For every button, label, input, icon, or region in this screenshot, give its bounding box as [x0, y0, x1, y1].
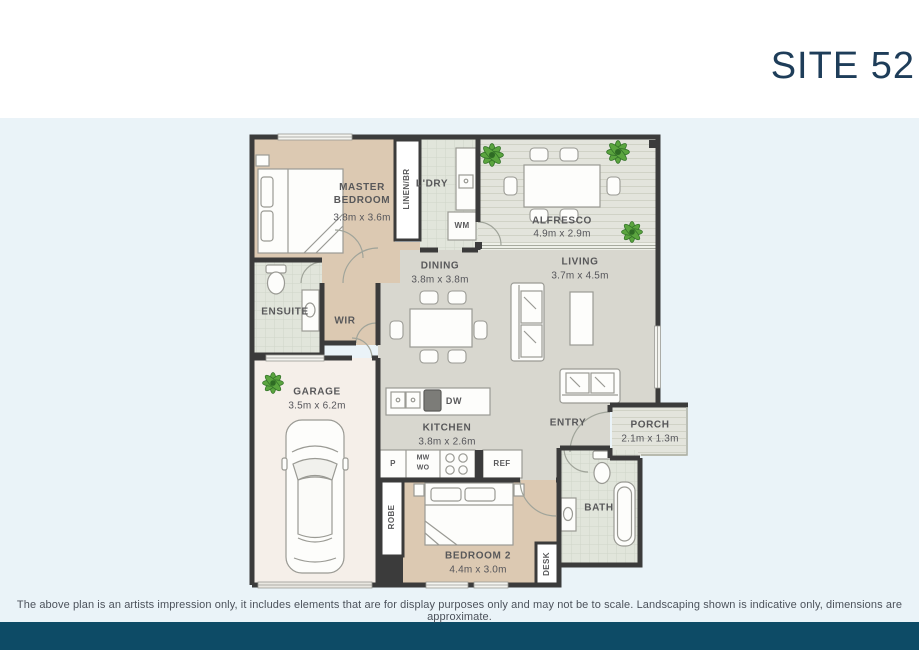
room-label-linen: LINEN/BR [402, 169, 412, 210]
room-label-kitchen: KITCHEN [423, 422, 472, 435]
wall-stub [475, 450, 483, 478]
room-dims-bedroom2: 4.4m x 3.0m [449, 564, 506, 577]
room-label-robe: ROBE [387, 505, 397, 530]
room-label-entry: ENTRY [550, 417, 587, 430]
fixture-label-washing-machine: WM [454, 221, 469, 231]
room-label-bath: BATH [584, 502, 613, 515]
footer-accent-bar [0, 622, 919, 650]
fixture-label-wall-oven: WO [417, 463, 429, 472]
room-label-dining: DINING [421, 260, 460, 273]
sofa-icon [511, 283, 544, 361]
sofa2-icon [560, 369, 620, 403]
coffee-table-icon [570, 292, 593, 345]
room-dims-master-bedroom: 3.8m x 3.6m [333, 212, 390, 225]
fixture-label-pantry: P [390, 459, 396, 469]
room-dims-living: 3.7m x 4.5m [551, 270, 608, 283]
floorplan-svg [248, 131, 690, 591]
car-icon [282, 420, 348, 573]
floor-plan: MASTER BEDROOM 3.8m x 3.6m LINEN/BR L'DR… [248, 131, 690, 591]
page-title: SITE 52 [771, 46, 915, 86]
room-label-alfresco: ALFRESCO [532, 215, 592, 228]
sliding-door [479, 243, 657, 250]
room-label-living: LIVING [562, 256, 599, 269]
kitchen-island-icon [386, 388, 490, 415]
room-dims-garage: 3.5m x 6.2m [288, 400, 345, 413]
room-label-bedroom2: BEDROOM 2 [445, 550, 511, 563]
room-label-laundry: L'DRY [416, 178, 448, 191]
fixture-label-fridge: REF [493, 459, 510, 469]
disclaimer-text: The above plan is an artists impression … [0, 599, 919, 623]
room-label-master-bedroom: MASTER BEDROOM [321, 181, 403, 207]
room-dims-alfresco: 4.9m x 2.9m [533, 228, 590, 241]
room-label-ensuite: ENSUITE [261, 306, 309, 319]
room-label-porch: PORCH [630, 419, 669, 432]
room-label-desk: DESK [542, 552, 552, 576]
wall-block [378, 556, 403, 585]
fixture-label-dishwasher: DW [446, 396, 462, 408]
room-label-wir: WIR [334, 315, 355, 328]
fixture-label-microwave: MW [417, 453, 430, 462]
room-dims-kitchen: 3.8m x 2.6m [418, 436, 475, 449]
room-dims-dining: 3.8m x 3.8m [411, 274, 468, 287]
room-dims-porch: 2.1m x 1.3m [621, 433, 678, 446]
room-label-garage: GARAGE [293, 386, 341, 399]
bedroom2-bed-icon [414, 483, 524, 545]
